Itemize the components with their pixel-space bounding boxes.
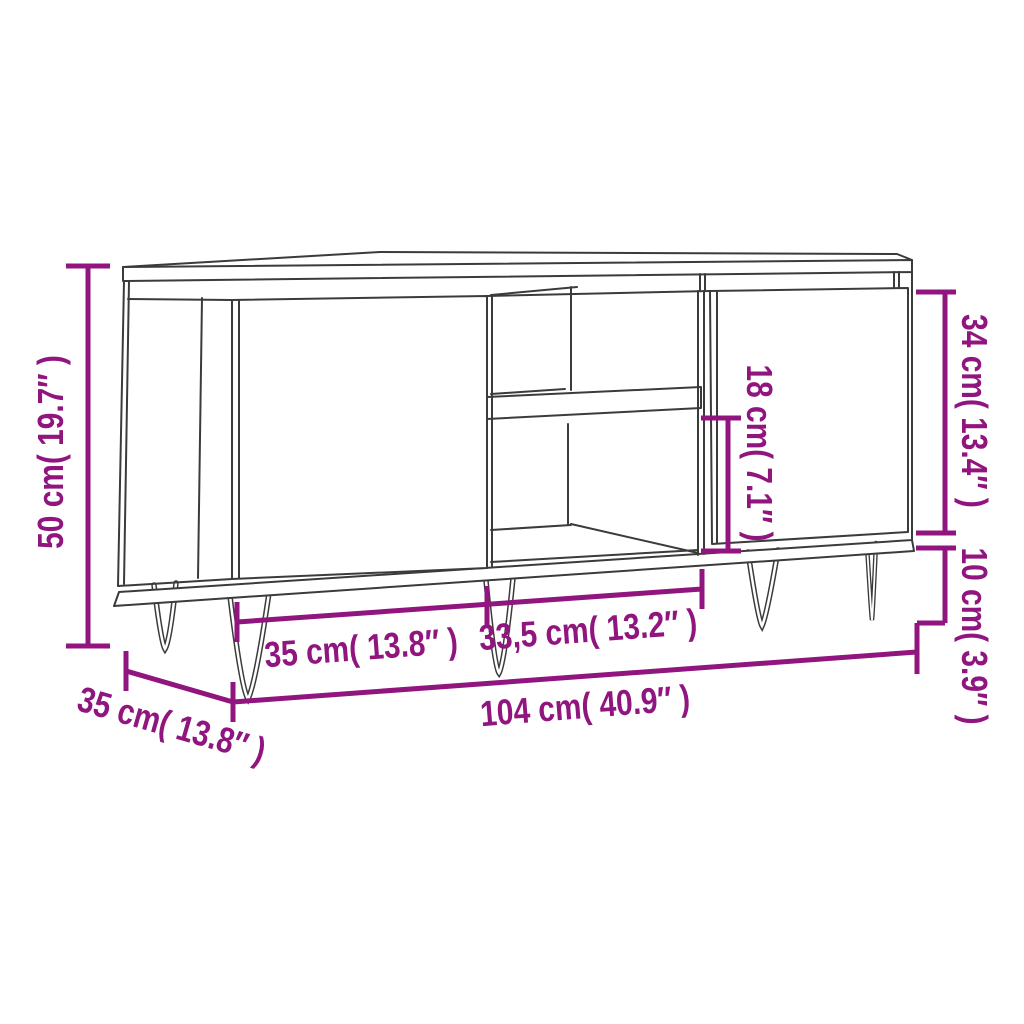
dim-overall-height: 50 cm( 19.7″ ) <box>31 266 110 646</box>
dimension-diagram: 50 cm( 19.7″ ) 34 cm( 13.4″ ) 10 cm( 3.9… <box>0 0 1024 1024</box>
dim-label-left-door-width: 35 cm( 13.8″ ) <box>263 621 459 676</box>
dim-label-leg-height: 10 cm( 3.9″ ) <box>953 547 993 724</box>
top-board <box>123 252 913 281</box>
dim-label-depth: 35 cm( 13.8″ ) <box>73 679 270 771</box>
diagram-canvas: 50 cm( 19.7″ ) 34 cm( 13.4″ ) 10 cm( 3.9… <box>0 0 1024 1024</box>
dim-label-overall-width: 104 cm( 40.9″ ) <box>479 678 692 735</box>
dim-label-compartment-height: 18 cm( 7.1″ ) <box>738 364 778 541</box>
left-side-panel <box>118 281 232 586</box>
dim-label-body-height: 34 cm( 13.4″ ) <box>953 314 993 508</box>
middle-compartment <box>487 287 710 566</box>
dim-label-overall-height: 50 cm( 19.7″ ) <box>31 355 71 549</box>
left-door <box>232 296 487 579</box>
dim-leg-height: 10 cm( 3.9″ ) <box>916 547 994 724</box>
dim-body-height: 34 cm( 13.4″ ) <box>916 292 994 533</box>
